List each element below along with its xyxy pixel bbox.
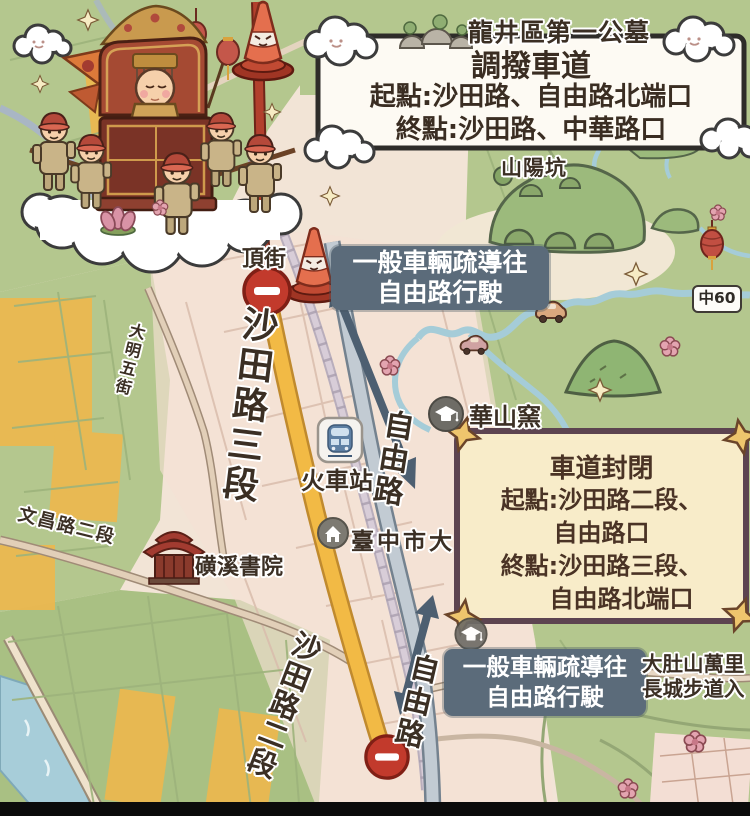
diversion-south-line2: 自由路行駛 (444, 682, 646, 712)
school-icon (429, 397, 463, 431)
route-box-line1: 起點:沙田路、自由路北端口 (318, 76, 744, 113)
route-box-line2: 終點:沙田路、中華路口 (318, 109, 744, 146)
route-number-badge: 中60 (692, 285, 742, 313)
dadushan-line1: 大肚山萬里 (642, 652, 745, 677)
closure-box-line1: 起點:沙田路二段、 (457, 480, 746, 515)
traffic-map: 龍井區第一公墓 調撥車道 起點:沙田路、自由路北端口 終點:沙田路、中華路口 車… (0, 0, 750, 816)
diversion-label-north: 一般車輛疏導往 自由路行駛 (331, 246, 549, 310)
closure-box-line4: 自由路北端口 (477, 579, 750, 614)
landmark-icon (318, 518, 348, 548)
diversion-label-south: 一般車輛疏導往 自由路行駛 (444, 649, 646, 716)
place-label-dadushan-trail: 大肚山萬里 長城步道入 (642, 652, 745, 702)
diversion-north-line2: 自由路行駛 (331, 278, 549, 308)
diversion-south-line1: 一般車輛疏導往 (444, 652, 646, 682)
place-label-shanyang: 山陽坑 (501, 152, 567, 182)
train-station-icon (318, 418, 362, 462)
place-label-taichung-uni: 臺中市大 (351, 522, 455, 556)
diversion-north-line1: 一般車輛疏導往 (331, 248, 549, 278)
dadushan-line2: 長城步道入 (642, 677, 745, 702)
place-label-top-street: 頂街 (242, 241, 286, 273)
place-label-huashan-kiln: 華山窯 (469, 397, 541, 432)
letterbox-bar (0, 802, 750, 816)
place-label-huangxi-academy: 磺溪書院 (195, 549, 283, 581)
school-icon (455, 618, 486, 649)
place-label-train-station: 火車站 (301, 461, 373, 496)
lotus-icon (98, 207, 137, 235)
closure-box-line3: 終點:沙田路三段、 (457, 546, 746, 581)
closure-box-line2: 自由路口 (457, 513, 746, 548)
